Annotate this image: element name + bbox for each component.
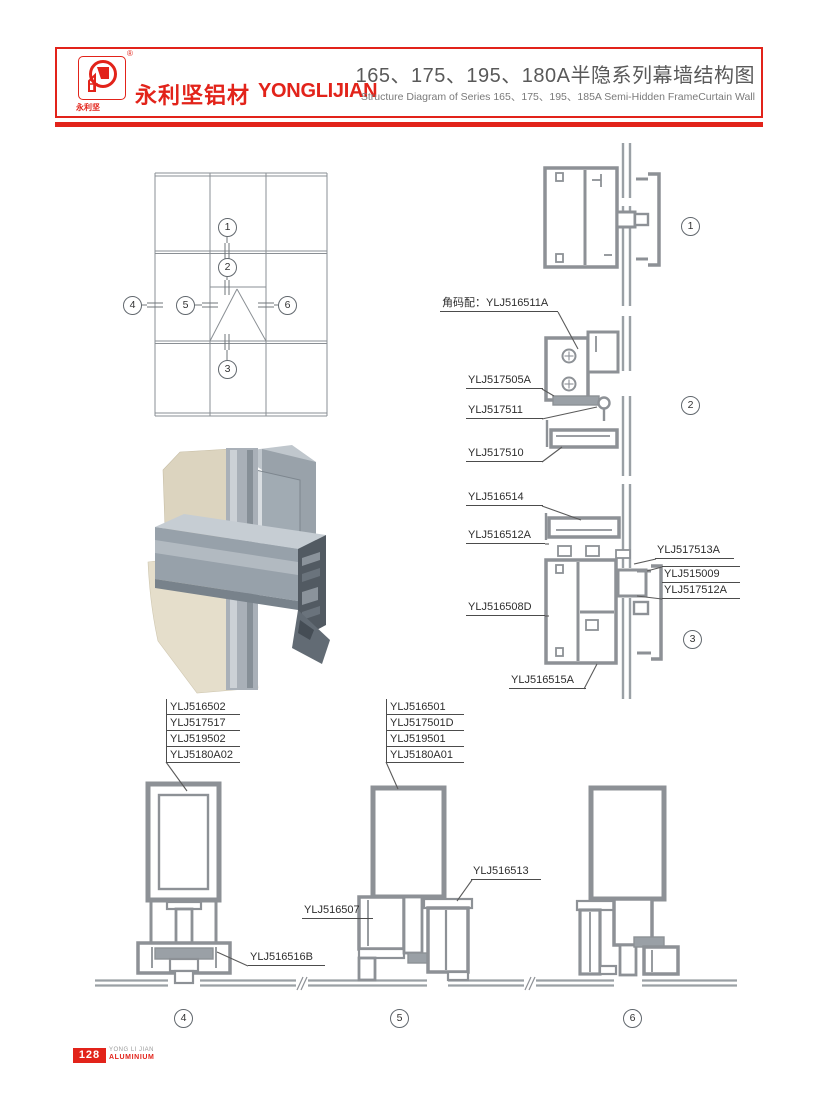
brand-logo	[78, 56, 126, 100]
gasket-symbol	[599, 398, 610, 409]
section-5-profile	[359, 788, 472, 980]
render-3d	[148, 445, 330, 693]
elevation-callout-6: 6	[278, 296, 297, 315]
part-label: YLJ516501	[387, 699, 464, 715]
window-opening-symbol	[210, 289, 266, 341]
part-label: YLJ5180A01	[387, 747, 464, 763]
part-label: YLJ517501D	[387, 715, 464, 731]
section-callout-3: 3	[683, 630, 702, 649]
registered-mark: ®	[127, 49, 133, 58]
break-marks	[297, 977, 535, 990]
part-label: YLJ515009	[662, 567, 740, 583]
part-label-stack-4: YLJ516502 YLJ517517 YLJ519502 YLJ5180A02	[166, 699, 240, 763]
footer-brand-line2: ALUMINIUM	[109, 1054, 154, 1062]
part-label: YLJ5180A02	[167, 747, 240, 763]
section-callout-6: 6	[623, 1009, 642, 1028]
header-rule	[55, 122, 763, 127]
part-label: YLJ516516B	[248, 951, 325, 966]
catalog-page: ® 永利坚 永利坚铝材 YONGLIJIAN 165、175、195、180A半…	[0, 0, 817, 1101]
part-label-stack-5: YLJ516501 YLJ517501D YLJ519501 YLJ5180A0…	[386, 699, 464, 763]
section-callout-1: 1	[681, 217, 700, 236]
footer-brand-line1: YONG LI JIAN	[109, 1047, 154, 1054]
section-3-profile	[546, 513, 661, 663]
part-label: YLJ517513A	[655, 544, 734, 559]
section-2-profile	[546, 332, 618, 447]
part-label: YLJ517512A	[662, 583, 740, 599]
part-label: YLJ517510	[466, 447, 543, 462]
part-label: YLJ516513	[471, 865, 541, 880]
elevation-callout-5: 5	[176, 296, 195, 315]
part-label: YLJ517517	[167, 715, 240, 731]
page-title-en: Structure Diagram of Series 165、175、195、…	[330, 89, 755, 104]
section-callout-4: 4	[174, 1009, 193, 1028]
part-label: YLJ516508D	[466, 601, 545, 616]
part-label: YLJ519501	[387, 731, 464, 747]
elevation-diagram	[141, 173, 327, 416]
part-label: YLJ516502	[167, 699, 240, 715]
part-label: YLJ519502	[167, 731, 240, 747]
section-4-profile	[138, 784, 230, 983]
section-1-profile	[545, 168, 659, 267]
part-label: YLJ516515A	[509, 674, 586, 689]
part-label: YLJ516514	[466, 491, 543, 506]
part-label: YLJ517505A	[466, 374, 543, 389]
elevation-callout-1: 1	[218, 218, 237, 237]
page-title-cn: 165、175、195、180A半隐系列幕墙结构图	[330, 59, 755, 88]
section-callout-5: 5	[390, 1009, 409, 1028]
section-6-profile	[577, 788, 678, 975]
part-label-corner-code: 角码配：YLJ516511A	[440, 297, 558, 312]
part-label: YLJ517511	[466, 404, 543, 419]
footer-brand: YONG LI JIAN ALUMINIUM	[109, 1047, 154, 1062]
logo-emblem-icon	[79, 57, 124, 98]
logo-subtext: 永利坚	[76, 102, 128, 113]
part-label: YLJ516507	[302, 904, 373, 919]
elevation-callout-3: 3	[218, 360, 237, 379]
elevation-callout-4: 4	[123, 296, 142, 315]
part-label-group: YLJ515009 YLJ517512A	[662, 566, 740, 599]
brand-name-cn: 永利坚铝材	[135, 78, 250, 110]
page-number: 128	[73, 1048, 106, 1063]
section-callout-2: 2	[681, 396, 700, 415]
elevation-callout-2: 2	[218, 258, 237, 277]
part-label: YLJ516512A	[466, 529, 545, 544]
